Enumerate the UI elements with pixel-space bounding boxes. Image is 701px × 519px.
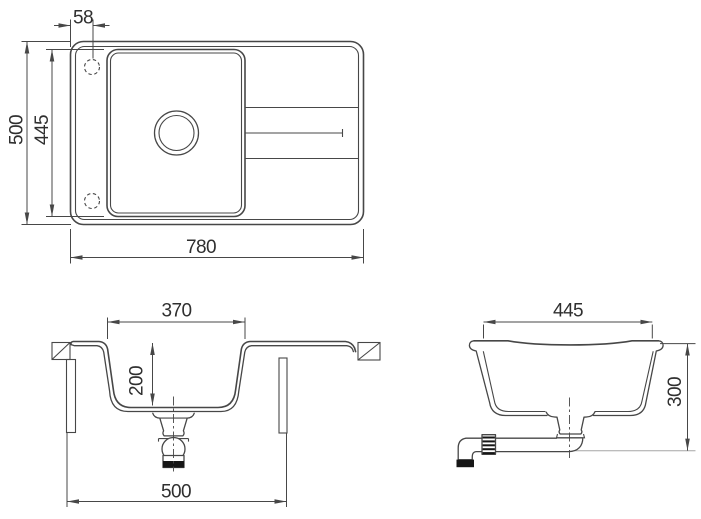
side-drain-assembly [457, 398, 596, 468]
top-view: 58 500 445 780 [7, 8, 364, 264]
dim-bowl-depth: 200 [127, 343, 153, 406]
countertop-section-left [52, 343, 70, 360]
side-inner-surface-right [595, 351, 654, 411]
dim-faucet-offset: 58 [54, 8, 110, 59]
dim-bowl-width: 370 [108, 301, 246, 340]
drain-hole-inner [159, 116, 194, 151]
sink-section-top-surface [71, 342, 356, 408]
side-view: 445 300 [457, 301, 696, 468]
dim-label-500-top: 500 [7, 115, 28, 145]
waste-pipe [458, 438, 583, 460]
dim-label-780: 780 [186, 237, 216, 258]
cabinet-panel-right [279, 358, 287, 433]
dim-overall-length: 780 [71, 229, 364, 264]
dim-label-445-top: 445 [32, 115, 53, 145]
dim-label-300: 300 [665, 377, 686, 407]
corrugated-coupling [482, 435, 496, 455]
countertop-section-right [358, 343, 380, 361]
tap-hole-top [85, 60, 100, 75]
cabinet-panel-left [67, 360, 76, 433]
front-view: 370 200 500 [52, 301, 380, 508]
dim-label-500-bottom: 500 [161, 482, 191, 503]
side-drain-cup [546, 412, 595, 434]
dim-label-370: 370 [162, 301, 192, 322]
dim-height-with-trap: 300 [660, 344, 696, 451]
sink-dimension-drawing: 58 500 445 780 [0, 0, 701, 519]
dim-cutout-width: 445 [32, 50, 104, 217]
side-inner-surface-left [483, 351, 545, 411]
dim-label-445-side: 445 [553, 301, 583, 322]
waste-pipe-end-cap [457, 460, 475, 468]
side-rim-top [474, 341, 659, 345]
tap-hole-bottom [85, 194, 100, 209]
dim-bowl-top-length: 445 [484, 301, 653, 339]
drain-hole-outer [155, 111, 199, 155]
bowl-outline [107, 50, 245, 217]
bowl-inner-line [111, 53, 242, 213]
dim-label-200: 200 [127, 366, 148, 396]
side-outer-shell-left [469, 341, 547, 416]
sink-section-underside [71, 345, 353, 412]
dim-label-58: 58 [73, 8, 93, 29]
drawing-svg: 58 500 445 780 [0, 0, 701, 519]
